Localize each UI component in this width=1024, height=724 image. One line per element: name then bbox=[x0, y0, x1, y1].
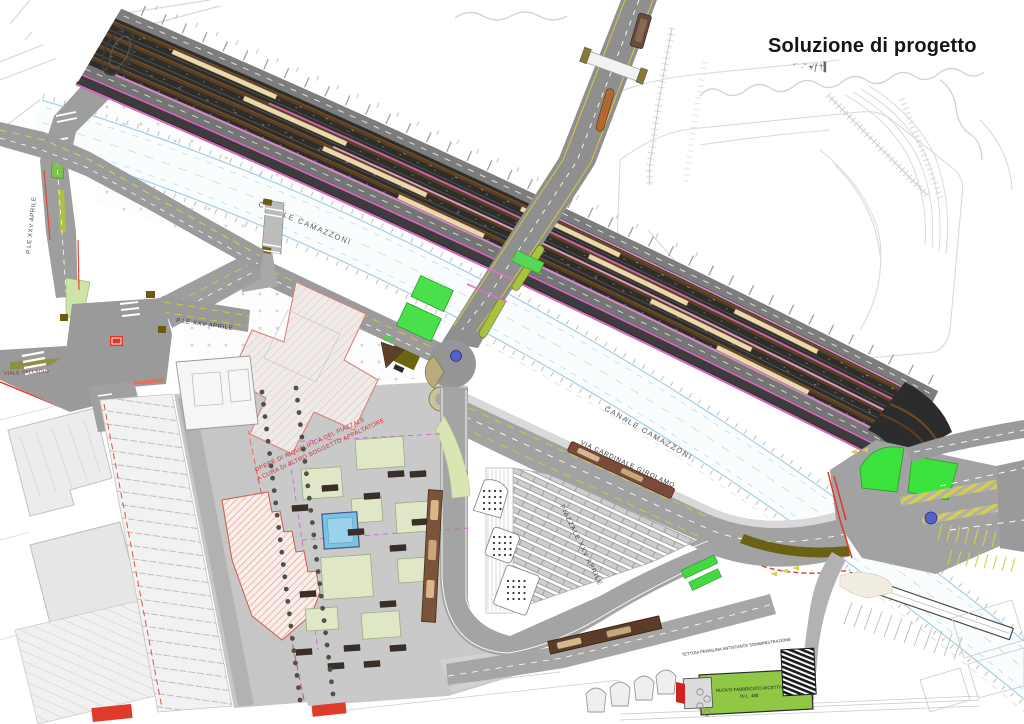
svg-text:Soluzione di progetto: Soluzione di progetto bbox=[768, 35, 977, 57]
svg-text:IN L. 488: IN L. 488 bbox=[740, 693, 759, 699]
svg-text:’˙ ·˜ •⁄ƒ†▍: ’˙ ·˜ •⁄ƒ†▍ bbox=[793, 61, 831, 73]
